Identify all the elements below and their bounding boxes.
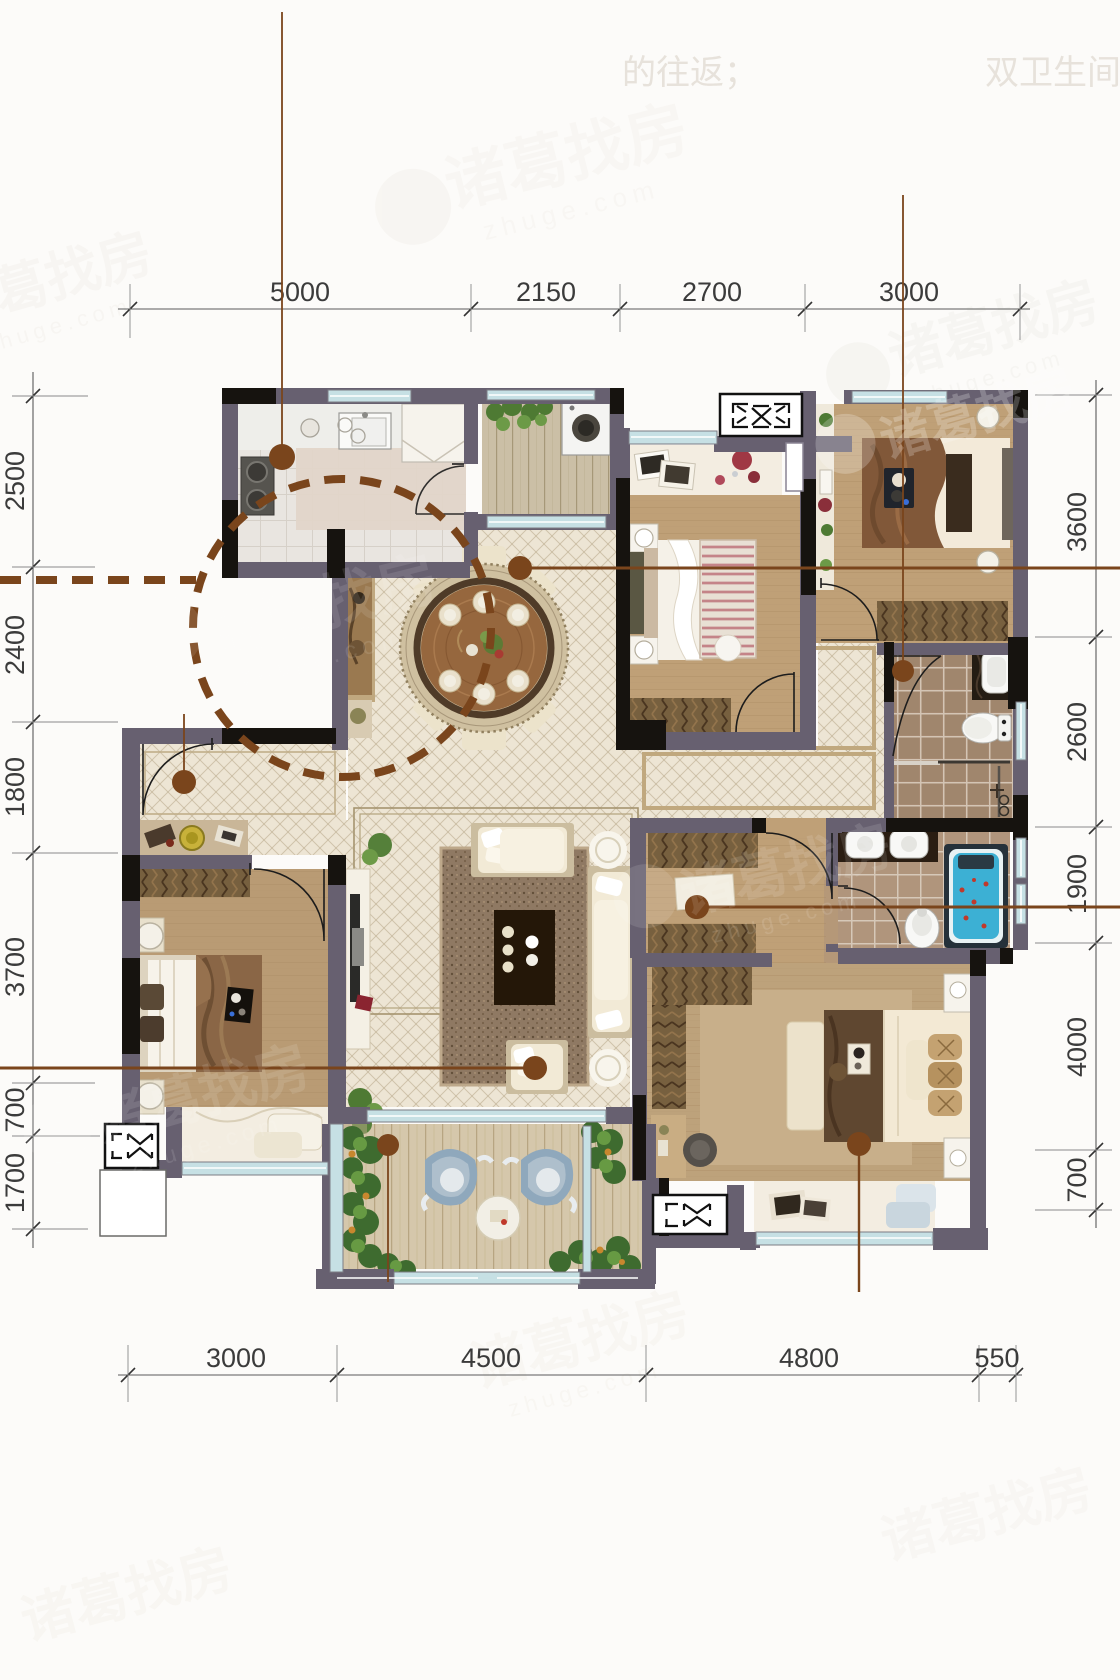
svg-text:5000: 5000 <box>270 277 330 307</box>
svg-text:3000: 3000 <box>206 1343 266 1373</box>
svg-text:2700: 2700 <box>682 277 742 307</box>
svg-text:2600: 2600 <box>1062 702 1092 762</box>
svg-text:3700: 3700 <box>0 937 30 997</box>
svg-text:双卫生间: 双卫生间 <box>985 54 1120 92</box>
svg-text:4800: 4800 <box>779 1343 839 1373</box>
svg-text:550: 550 <box>974 1343 1019 1373</box>
svg-text:3000: 3000 <box>879 277 939 307</box>
svg-text:700: 700 <box>1062 1157 1092 1202</box>
svg-text:2500: 2500 <box>0 451 30 511</box>
svg-text:1800: 1800 <box>0 757 30 817</box>
svg-text:1700: 1700 <box>0 1153 30 1213</box>
svg-text:1900: 1900 <box>1062 854 1092 914</box>
svg-text:2150: 2150 <box>516 277 576 307</box>
svg-text:4000: 4000 <box>1062 1017 1092 1077</box>
svg-text:2400: 2400 <box>0 615 30 675</box>
svg-text:4500: 4500 <box>461 1343 521 1373</box>
svg-text:3600: 3600 <box>1062 492 1092 552</box>
svg-text:的往返；: 的往返； <box>622 54 758 92</box>
